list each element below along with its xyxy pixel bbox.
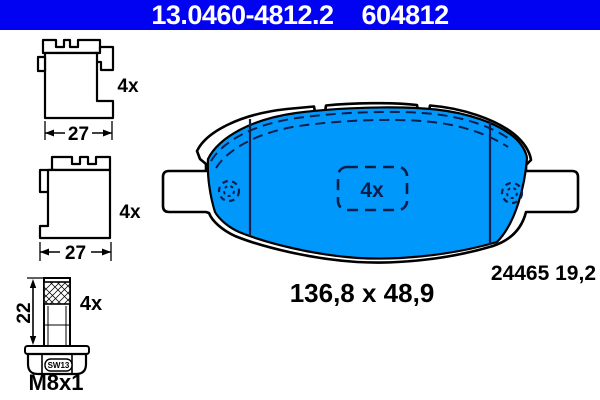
clip-body <box>40 170 110 238</box>
bolt-quantity-label: 4x <box>80 293 102 315</box>
drawing-canvas: 4x 27 4x 27 <box>0 0 600 400</box>
pad-wva-number-label: 24465 19,2 <box>491 262 596 285</box>
bolt-flange <box>25 346 89 354</box>
clip-lower-quantity-label: 4x <box>119 202 141 223</box>
clip-upper-width-label: 27 <box>68 124 89 145</box>
bolt-thread-label: M8x1 <box>28 370 83 395</box>
pad-quantity-label: 4x <box>360 179 384 202</box>
retaining-clip-lower-drawing <box>40 157 110 238</box>
clip-bar <box>52 157 110 170</box>
brake-pad-drawing: 4x <box>163 103 578 262</box>
clip-upper-quantity-label: 4x <box>117 76 139 97</box>
product-technical-drawing: 13.0460-4812.2 604812 4x 27 4x <box>0 0 600 400</box>
clip-tab <box>38 57 45 71</box>
clip-bar <box>43 40 100 53</box>
pad-size-label: 136,8 x 48,9 <box>290 278 435 308</box>
clip-lower-width-label: 27 <box>65 243 86 264</box>
wrench-size-label: SW13 <box>48 361 70 370</box>
retaining-clip-upper-drawing <box>38 40 113 118</box>
bolt-length-label: 22 <box>14 302 35 323</box>
